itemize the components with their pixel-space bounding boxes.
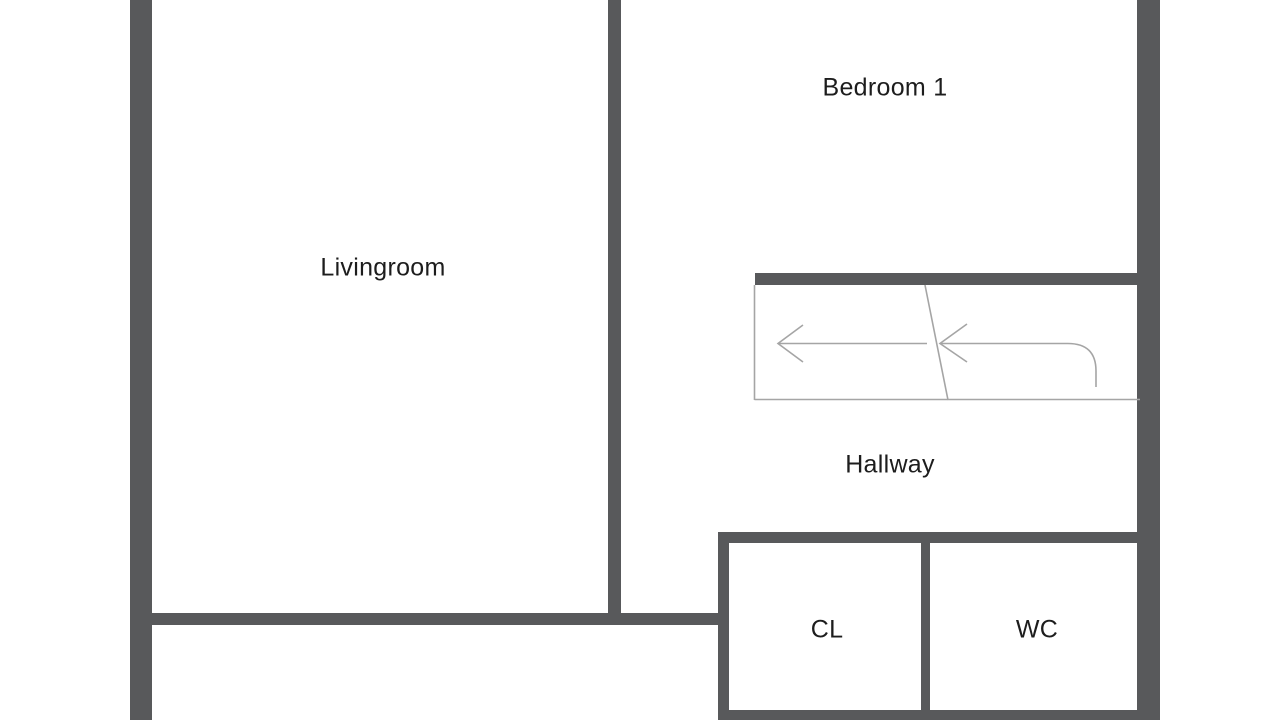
room-label-hallway: Hallway (845, 451, 935, 480)
stair-break-line (925, 285, 948, 400)
wall-closet-left (718, 532, 729, 720)
wall-closet-wc-divider (921, 533, 930, 720)
stair-arrow-left-head-icon (778, 325, 803, 362)
wall-right-exterior (1137, 0, 1160, 720)
stair-arrow-curve-shaft (940, 344, 1096, 388)
wall-closet-wc-top (718, 532, 1160, 543)
stair-arrow-curve-head-icon (940, 324, 967, 362)
room-label-bedroom1: Bedroom 1 (823, 74, 948, 103)
wall-bedroom1-stairs (755, 273, 1160, 285)
wall-left-exterior (130, 0, 152, 720)
staircase (0, 0, 1280, 720)
room-label-closet: CL (811, 616, 844, 645)
wall-livingroom-bottom (130, 613, 729, 625)
room-label-livingroom: Livingroom (320, 254, 445, 283)
floorplan: Livingroom Bedroom 1 Hallway CL WC (0, 0, 1280, 720)
room-label-wc: WC (1016, 616, 1058, 645)
wall-closet-wc-bottom (718, 710, 1160, 720)
wall-livingroom-hallway (608, 0, 621, 625)
